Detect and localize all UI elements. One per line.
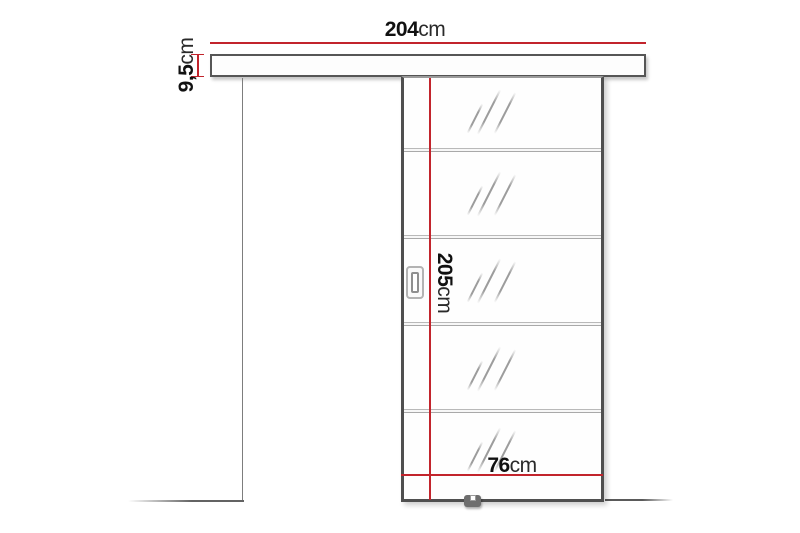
glass-divider-2 [404, 235, 601, 239]
floor-line-right [605, 499, 673, 501]
glass-divider-4 [404, 409, 601, 413]
top-track [210, 54, 646, 77]
track-width-value: 204 [385, 19, 419, 41]
track-height-value: 9,5 [176, 65, 198, 93]
glass-hatch-icon [471, 87, 517, 137]
track-width-dimension-line [210, 42, 646, 44]
track-height-unit: cm [176, 38, 198, 65]
door-height-label: 205cm [433, 251, 455, 315]
door-height-dimension-line [429, 78, 431, 500]
glass-hatch-icon [471, 169, 517, 219]
door-height-value: 205 [433, 253, 455, 287]
glass-divider-3 [404, 322, 601, 326]
glass-hatch-icon [471, 256, 517, 306]
wall-line [242, 78, 243, 501]
door-width-label: 76cm [462, 455, 562, 477]
door-width-value: 76 [487, 455, 509, 477]
track-height-label: 9,5cm [176, 33, 198, 97]
door-height-unit: cm [433, 286, 455, 313]
track-width-unit: cm [418, 19, 445, 41]
floor-guide-notch [470, 495, 476, 501]
door-width-unit: cm [510, 455, 537, 477]
door-handle-recess [411, 272, 419, 293]
glass-hatch-icon [471, 344, 517, 394]
floor-line-left [128, 500, 244, 502]
dimension-diagram: 204cm 9,5cm 205cm 76cm [0, 0, 800, 533]
track-width-label: 204cm [355, 19, 475, 41]
glass-divider-1 [404, 148, 601, 152]
